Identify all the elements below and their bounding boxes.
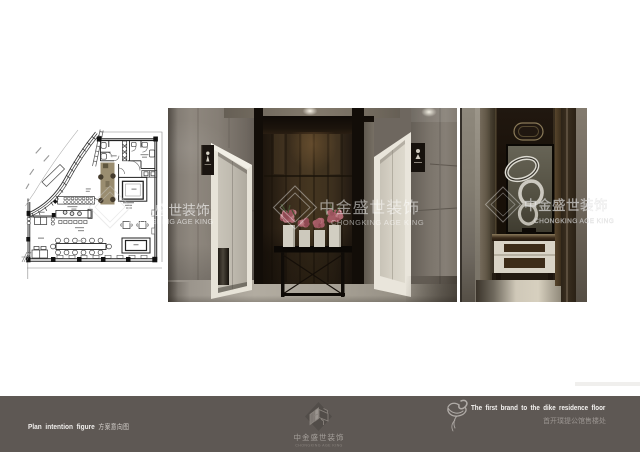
svg-text:CHONGKING AGE KING: CHONGKING AGE KING [129, 217, 213, 226]
svg-text:CHONGKING AGE KING: CHONGKING AGE KING [295, 444, 343, 448]
svg-text:CHONGKING AGE KING: CHONGKING AGE KING [331, 218, 424, 227]
svg-text:中金盛世装饰: 中金盛世装饰 [127, 203, 210, 218]
svg-text:CHONGKING AGE KING: CHONGKING AGE KING [534, 218, 614, 225]
svg-text:中金盛世装饰: 中金盛世装饰 [524, 198, 608, 213]
svg-text:中金盛世装饰: 中金盛世装饰 [294, 432, 345, 442]
svg-text:中金盛世装饰: 中金盛世装饰 [319, 199, 420, 217]
